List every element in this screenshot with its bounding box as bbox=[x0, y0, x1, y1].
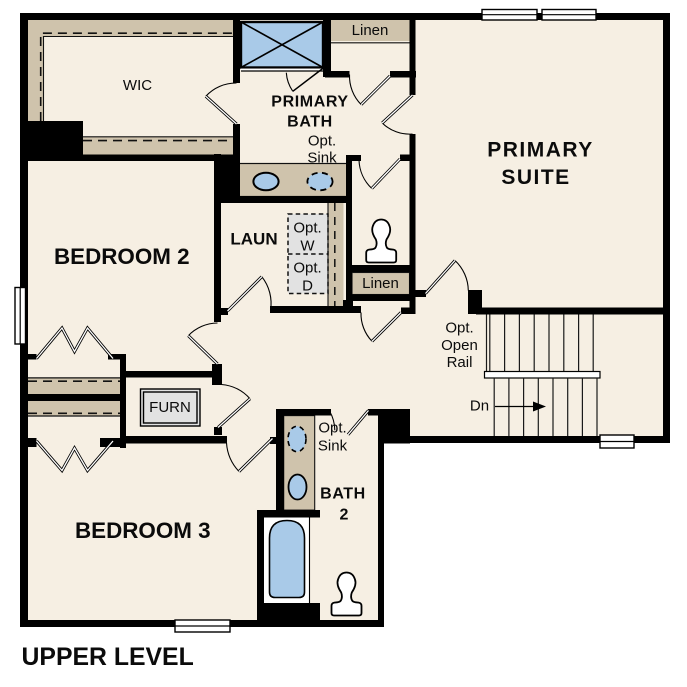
svg-text:Linen: Linen bbox=[362, 275, 399, 292]
svg-text:Opt.: Opt. bbox=[293, 220, 321, 237]
svg-text:BEDROOM 2: BEDROOM 2 bbox=[54, 244, 190, 269]
svg-text:Open: Open bbox=[441, 337, 478, 354]
svg-text:PRIMARY: PRIMARY bbox=[271, 94, 348, 111]
svg-text:BEDROOM 3: BEDROOM 3 bbox=[75, 518, 211, 543]
svg-text:Opt.: Opt. bbox=[318, 420, 346, 437]
svg-text:Opt.: Opt. bbox=[445, 320, 473, 337]
svg-text:W: W bbox=[300, 238, 315, 255]
svg-text:PRIMARY: PRIMARY bbox=[487, 139, 594, 162]
svg-text:Linen: Linen bbox=[352, 22, 389, 39]
svg-text:BATH: BATH bbox=[287, 114, 333, 131]
svg-text:Dn: Dn bbox=[470, 398, 489, 415]
svg-text:FURN: FURN bbox=[149, 399, 191, 416]
svg-text:Rail: Rail bbox=[447, 354, 473, 371]
svg-text:Opt.: Opt. bbox=[308, 133, 336, 150]
svg-text:LAUN: LAUN bbox=[230, 230, 277, 249]
svg-text:Sink: Sink bbox=[318, 438, 348, 455]
svg-text:BATH: BATH bbox=[320, 486, 366, 503]
svg-text:Sink: Sink bbox=[307, 150, 337, 167]
svg-text:UPPER LEVEL: UPPER LEVEL bbox=[22, 644, 194, 671]
svg-text:D: D bbox=[302, 278, 313, 295]
svg-text:2: 2 bbox=[340, 507, 349, 524]
svg-text:WIC: WIC bbox=[123, 77, 152, 94]
svg-text:SUITE: SUITE bbox=[501, 166, 570, 189]
svg-text:Opt.: Opt. bbox=[293, 260, 321, 277]
